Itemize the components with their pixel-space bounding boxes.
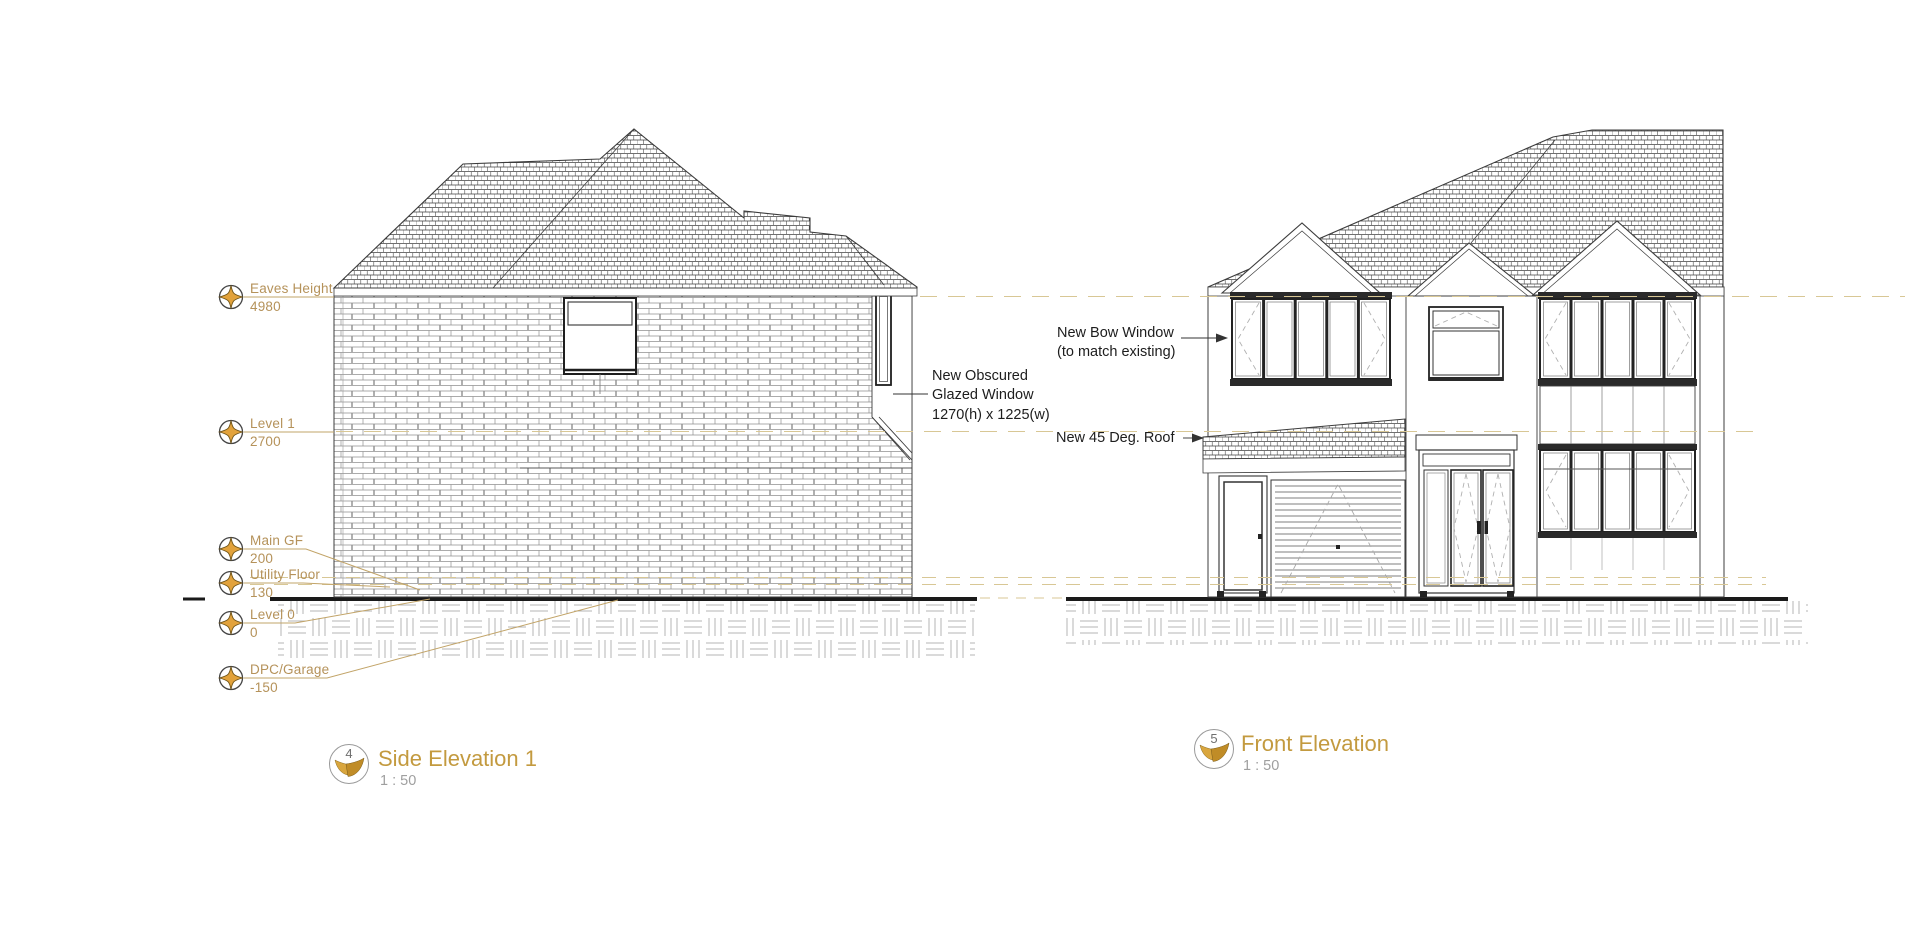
view-number: 4 <box>328 746 370 761</box>
annotation-bow-window: New Bow Window (to match existing) <box>1057 324 1175 363</box>
annotation-45deg-roof: New 45 Deg. Roof <box>1056 429 1174 448</box>
level-datum-star-icon <box>217 664 245 692</box>
annotation-line: New Obscured <box>932 367 1050 386</box>
side-obscured-window <box>876 293 891 385</box>
level-value: 4980 <box>250 299 281 314</box>
level-label: Utility Floor <box>250 567 320 582</box>
level-value: 2700 <box>250 434 281 449</box>
level-value: 0 <box>250 625 258 640</box>
side-roof <box>334 129 917 288</box>
front-bay-spandrel <box>1540 386 1695 444</box>
annotation-line: Glazed Window <box>932 386 1050 405</box>
elevation-drawing-canvas <box>0 0 1920 946</box>
view-title-side-elevation: Side Elevation 1 <box>378 746 537 772</box>
front-elevation-drawing <box>1203 130 1724 597</box>
level-datum-star-icon <box>217 569 245 597</box>
drawing-sheet: Eaves Height 4980 Level 1 2700 Main GF 2… <box>0 0 1920 946</box>
level-label: Level 1 <box>250 416 295 431</box>
level-value: 200 <box>250 551 273 566</box>
level-datum-star-icon <box>217 418 245 446</box>
front-left-bow-window <box>1230 292 1392 386</box>
front-garage-door <box>1271 480 1405 597</box>
ground-paving <box>183 599 1808 658</box>
side-elevation-drawing <box>334 129 917 597</box>
level-label: Eaves Height <box>250 281 333 296</box>
front-centre-window <box>1429 307 1503 381</box>
level-datum-star-icon <box>217 535 245 563</box>
side-fascia <box>334 288 917 296</box>
view-title-front-elevation: Front Elevation <box>1241 731 1389 757</box>
view-number: 5 <box>1193 731 1235 746</box>
level-value: -150 <box>250 680 278 695</box>
view-scale: 1 : 50 <box>1243 758 1279 774</box>
level-datum-star-icon <box>217 609 245 637</box>
front-entrance <box>1416 435 1517 593</box>
level-value: 130 <box>250 585 273 600</box>
annotation-line: New Bow Window <box>1057 324 1175 343</box>
front-right-bow-window <box>1538 292 1697 386</box>
annotation-obscured-window: New Obscured Glazed Window 1270(h) x 122… <box>932 367 1050 425</box>
level-label: DPC/Garage <box>250 662 329 677</box>
front-side-door <box>1219 476 1267 593</box>
annotation-line: (to match existing) <box>1057 343 1175 362</box>
level-label: Level 0 <box>250 607 295 622</box>
level-label: Main GF <box>250 533 303 548</box>
view-scale: 1 : 50 <box>380 773 416 789</box>
annotation-line: 1270(h) x 1225(w) <box>932 406 1050 425</box>
level-datum-star-icon <box>217 283 245 311</box>
